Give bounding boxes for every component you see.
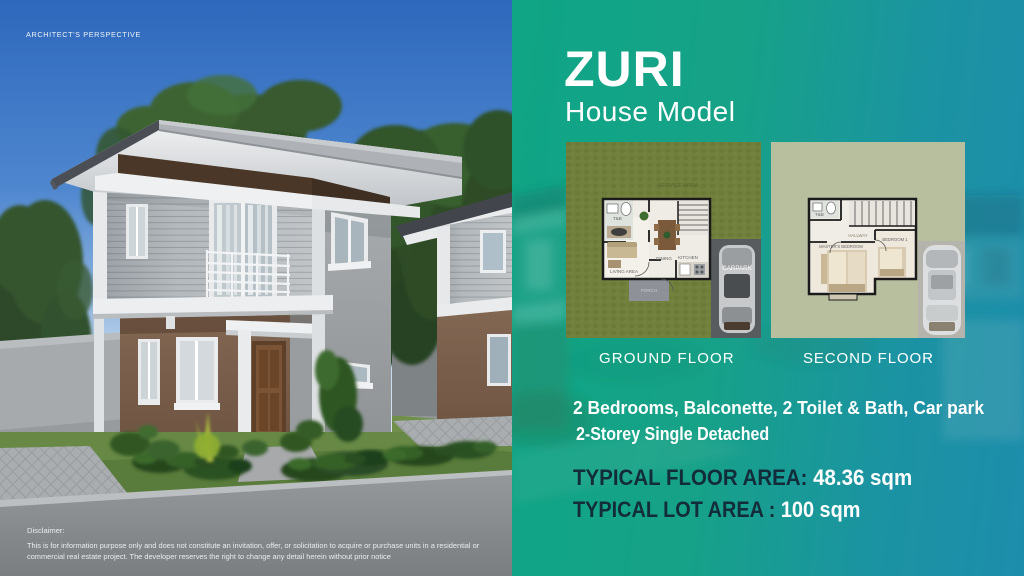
svg-text:LIVING AREA: LIVING AREA bbox=[610, 269, 638, 274]
svg-text:commercial real estate project: commercial real estate project. The deve… bbox=[27, 552, 391, 561]
svg-text:Disclaimer:: Disclaimer: bbox=[27, 526, 65, 535]
svg-text:T&B: T&B bbox=[815, 212, 824, 217]
svg-text:T&B: T&B bbox=[613, 216, 622, 221]
svg-text:PORCH: PORCH bbox=[641, 288, 657, 293]
svg-text:MASTER'S BEDROOM: MASTER'S BEDROOM bbox=[819, 244, 863, 249]
svg-text:SERVICE AREA: SERVICE AREA bbox=[658, 183, 699, 189]
svg-text:This is for information purpos: This is for information purpose only and… bbox=[27, 541, 480, 550]
svg-text:HALLWAY: HALLWAY bbox=[848, 233, 867, 238]
svg-text:KITCHEN: KITCHEN bbox=[678, 255, 698, 260]
svg-text:BEDROOM 1: BEDROOM 1 bbox=[882, 237, 908, 242]
svg-text:DINING: DINING bbox=[656, 256, 672, 261]
svg-text:ARCHITECT'S PERSPECTIVE: ARCHITECT'S PERSPECTIVE bbox=[26, 30, 141, 39]
svg-text:CARPARK: CARPARK bbox=[722, 265, 752, 272]
